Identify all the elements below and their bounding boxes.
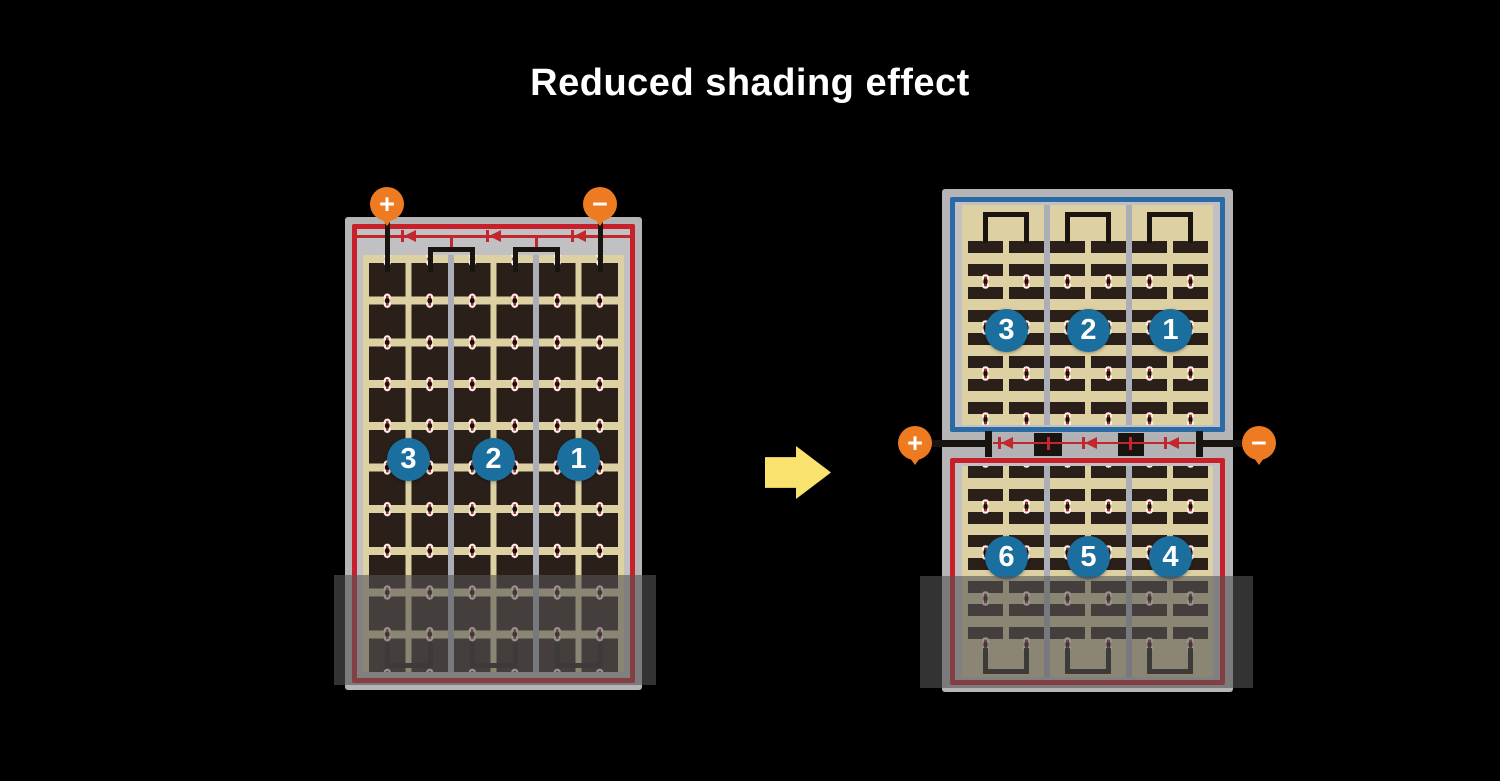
right-plus-terminal: + [898, 426, 932, 460]
right-top-string-divider-2 [1126, 205, 1132, 425]
right-top-jumper-1 [983, 212, 1029, 243]
right-top-string-divider-1 [1044, 205, 1050, 425]
right-string-badge-2-label: 2 [1080, 314, 1096, 347]
left-minus-terminal: − [583, 187, 617, 221]
right-string-badge-4-label: 4 [1162, 541, 1178, 574]
bypass-diode-icon [998, 437, 1013, 449]
right-string-badge-3-label: 3 [998, 314, 1014, 347]
right-string-badge-6-label: 6 [998, 541, 1014, 574]
right-string-badge-1-label: 1 [1162, 314, 1178, 347]
right-string-badge-4: 4 [1149, 536, 1192, 579]
left-shading-overlay [334, 575, 656, 685]
minus-icon: − [1251, 430, 1267, 457]
junction-bus-tap-2 [1129, 437, 1132, 450]
left-string-badge-3-label: 3 [400, 443, 416, 476]
plus-icon: + [379, 191, 395, 218]
diagram-canvas: Reduced shading effect 3 2 1 [0, 0, 1500, 781]
bypass-diode-icon [486, 230, 501, 242]
right-minus-terminal: − [1242, 426, 1276, 460]
right-string-badge-2: 2 [1067, 309, 1110, 352]
right-string-badge-5: 5 [1067, 536, 1110, 579]
left-string-badge-2-label: 2 [485, 443, 501, 476]
right-negative-lead-wire [1200, 440, 1246, 447]
plus-icon: + [907, 430, 923, 457]
left-string-jumper-top-1 [428, 247, 475, 272]
right-string-badge-1: 1 [1149, 309, 1192, 352]
bypass-diode-icon [401, 230, 416, 242]
left-string-jumper-top-2 [513, 247, 560, 272]
right-top-jumper-2 [1065, 212, 1111, 243]
right-positive-lead-wire [924, 440, 988, 447]
right-shading-overlay [920, 576, 1253, 688]
minus-icon: − [592, 191, 608, 218]
left-string-badge-2: 2 [472, 438, 515, 481]
left-string-badge-1-label: 1 [570, 443, 586, 476]
transform-arrow-icon [765, 446, 831, 499]
right-top-jumper-3 [1147, 212, 1193, 243]
junction-bus-tap-1 [1047, 437, 1050, 450]
page-title: Reduced shading effect [0, 62, 1500, 105]
left-plus-terminal: + [370, 187, 404, 221]
right-string-badge-3: 3 [985, 309, 1028, 352]
right-string-badge-6: 6 [985, 536, 1028, 579]
left-string-badge-3: 3 [387, 438, 430, 481]
left-string-badge-1: 1 [557, 438, 600, 481]
bypass-diode-icon [1082, 437, 1097, 449]
bypass-diode-icon [571, 230, 586, 242]
right-string-badge-5-label: 5 [1080, 541, 1096, 574]
bypass-diode-icon [1164, 437, 1179, 449]
